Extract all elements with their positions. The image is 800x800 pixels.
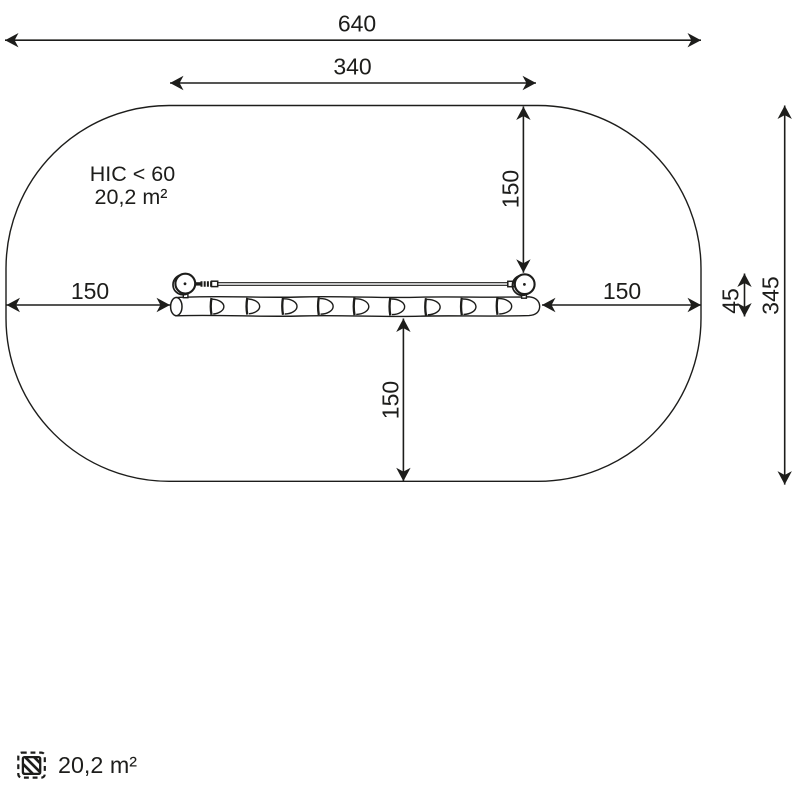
svg-text:150: 150	[603, 278, 641, 304]
svg-text:150: 150	[71, 278, 109, 304]
svg-text:640: 640	[338, 11, 376, 37]
svg-text:20,2 m²: 20,2 m²	[58, 752, 137, 778]
svg-text:150: 150	[498, 170, 524, 208]
svg-text:HIC < 60: HIC < 60	[90, 162, 175, 186]
svg-text:45: 45	[718, 288, 744, 314]
svg-text:340: 340	[333, 54, 371, 80]
svg-text:150: 150	[378, 381, 404, 419]
svg-text:345: 345	[758, 276, 784, 314]
svg-text:20,2 m²: 20,2 m²	[95, 185, 168, 209]
